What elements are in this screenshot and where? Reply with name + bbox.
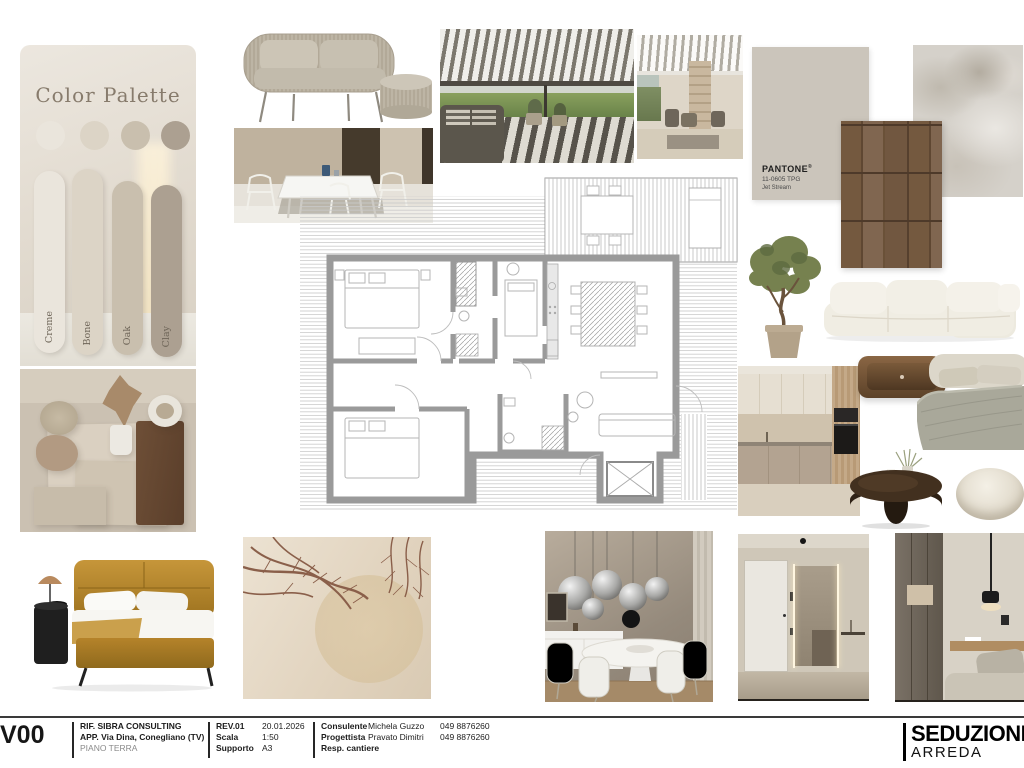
louver-roof — [440, 29, 634, 83]
floor-plan — [299, 176, 739, 516]
oval-table-image — [848, 448, 945, 530]
contact-phones: 049 8876260 049 8876260 — [440, 721, 490, 743]
registered-mark: ® — [808, 164, 812, 170]
hallway-photo — [738, 534, 869, 701]
paddle-label: Oak — [122, 326, 133, 355]
mural-branches — [243, 537, 431, 699]
titleblock-separator-2 — [208, 722, 210, 758]
striped-cushion-2 — [472, 109, 496, 125]
wardrobe — [895, 533, 943, 700]
palette-paddle-clay: Clay — [151, 185, 182, 357]
palette-circle-bone — [80, 121, 109, 150]
white-door — [744, 560, 788, 672]
planter-pot — [526, 113, 542, 125]
kitchen-floor — [738, 484, 860, 516]
revision-labels: REV.01 Scala Supporto — [216, 721, 254, 754]
round-stone — [40, 401, 78, 435]
inner-cabinet — [812, 630, 836, 666]
backsplash — [738, 414, 832, 442]
rug — [667, 135, 719, 149]
roof-deck — [545, 178, 737, 262]
planter-pot-2 — [552, 115, 567, 126]
site-manager-label: Resp. cantiere — [321, 743, 379, 754]
pantone-name: Jet Stream — [762, 185, 791, 191]
white-vase — [110, 425, 132, 455]
bed-cutout-image — [917, 352, 1024, 450]
microwave — [834, 408, 858, 422]
contact-phone-2: 049 8876260 — [440, 732, 490, 743]
chair-silhouette — [665, 109, 679, 127]
wardrobe-seam — [911, 533, 912, 700]
titleblock-separator — [72, 722, 74, 758]
hall-floor — [738, 672, 869, 699]
drawer-knob — [900, 375, 904, 379]
revision-values: 20.01.2026 1:50 A3 — [262, 721, 305, 754]
vase-sprig — [850, 620, 852, 632]
support-value: A3 — [262, 743, 305, 754]
titleblock-separator-3 — [313, 722, 315, 758]
mustard-bed-image — [12, 548, 219, 691]
rev-date: 20.01.2026 — [262, 721, 305, 732]
console-shelf — [841, 632, 865, 635]
walnut-board — [136, 421, 184, 525]
project-info: RIF. SIBRA CONSULTING APP. Via Dina, Con… — [80, 721, 204, 754]
contact-name: Michela Guzzo — [368, 721, 424, 732]
led-strip-2 — [837, 564, 839, 668]
pergola-terrace-photo-2 — [637, 35, 743, 159]
door-handle — [783, 614, 786, 617]
pantone-code: 11-0605 TPG — [762, 176, 800, 183]
pergola-post — [544, 85, 547, 121]
palette-paddle-creme: Creme — [34, 171, 65, 353]
project-ref: RIF. SIBRA CONSULTING — [80, 721, 204, 732]
book — [965, 637, 981, 641]
wall-switch — [1001, 615, 1009, 625]
cabinet-seams — [738, 374, 832, 414]
titleblock-rule — [0, 716, 1024, 718]
dining-room-scene — [545, 531, 713, 702]
coral-object — [36, 435, 78, 471]
olive-tree-image — [737, 228, 833, 360]
pendant-shade — [982, 591, 999, 603]
elevator-shaft — [607, 462, 653, 496]
pergola-terrace-photo-1 — [440, 29, 634, 163]
pantone-brand: PANTONE® — [762, 164, 812, 174]
lit-niche — [907, 585, 933, 605]
project-address: APP. Via Dina, Conegliano (TV) — [80, 732, 204, 743]
scale-value: 1:50 — [262, 732, 305, 743]
company-logo: SEDUZIONE ARREDA — [903, 723, 1024, 761]
color-palette-card: Color Palette Creme Bone Oak Clay — [20, 45, 196, 366]
ceiling-spot — [800, 538, 806, 544]
white-ring-vessel — [148, 395, 182, 427]
project-floor: PIANO TERRA — [80, 743, 204, 754]
palette-circle-clay — [161, 121, 190, 150]
striped-cushion — [446, 109, 470, 125]
contact-names: Michela Guzzo Pravato Dimitri — [368, 721, 424, 743]
chair-silhouette-2 — [711, 111, 725, 127]
pendant-cord — [990, 533, 992, 591]
sheet-code: V00 — [0, 721, 44, 750]
contact-phone: 049 8876260 — [440, 721, 490, 732]
outdoor-sofa-image — [236, 22, 432, 126]
branch-mural-image — [243, 537, 431, 699]
kitchen-photo — [738, 366, 860, 516]
support-label: Supporto — [216, 743, 254, 754]
faucet — [766, 432, 768, 442]
stone-strip — [34, 487, 106, 525]
wood-flooring-sample — [841, 121, 942, 268]
base-seams — [738, 446, 832, 484]
materials-flatlay-photo — [20, 369, 196, 532]
bedroom-photo — [895, 533, 1024, 702]
wardrobe-seam-2 — [927, 533, 928, 700]
palette-circle-creme — [36, 121, 65, 150]
led-strip — [793, 564, 795, 668]
cream-sofa-image — [820, 276, 1022, 342]
palette-circle-oak — [121, 121, 150, 150]
contact-name-2: Pravato Dimitri — [368, 732, 424, 743]
boucle-pouf-image — [956, 468, 1024, 520]
bed-duvet — [945, 673, 1024, 700]
palette-paddle-bone: Bone — [72, 169, 103, 355]
table-silhouette — [681, 113, 697, 127]
logo-line2: ARREDA — [911, 745, 1024, 761]
rev-label: REV.01 — [216, 721, 254, 732]
greenery — [637, 87, 661, 121]
logo-line1: SEDUZIONE — [911, 723, 1024, 745]
paddle-label: Clay — [161, 326, 172, 357]
dining-room-photo — [545, 531, 713, 702]
lamp-glow-ellipse — [981, 603, 1001, 611]
scale-label: Scala — [216, 732, 254, 743]
paddle-label: Bone — [82, 321, 93, 355]
presentation-board: { "palette": { "title": "Color Palette",… — [0, 0, 1024, 768]
palette-title: Color Palette — [20, 83, 196, 107]
palette-paddle-oak: Oak — [112, 181, 143, 355]
paddle-label: Creme — [44, 311, 55, 353]
